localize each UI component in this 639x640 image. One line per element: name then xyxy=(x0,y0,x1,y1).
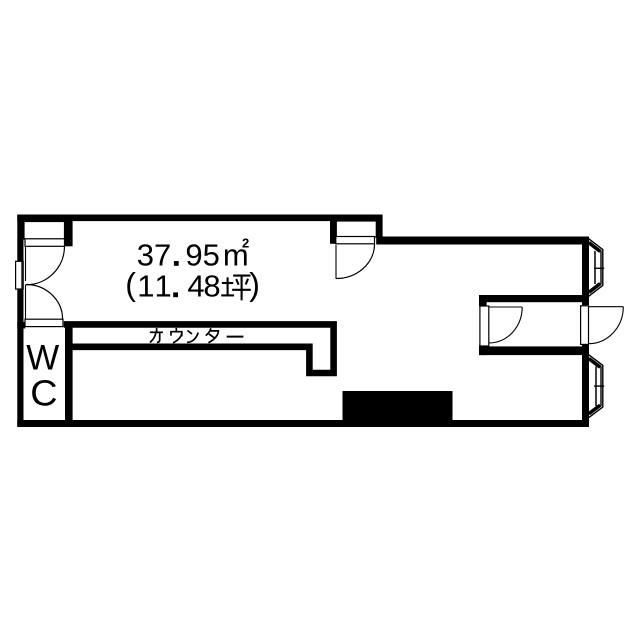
svg-text:C: C xyxy=(30,374,57,414)
svg-text:2: 2 xyxy=(242,236,249,251)
svg-text:W: W xyxy=(26,339,59,378)
svg-text:3795m: 3795m xyxy=(137,237,249,272)
